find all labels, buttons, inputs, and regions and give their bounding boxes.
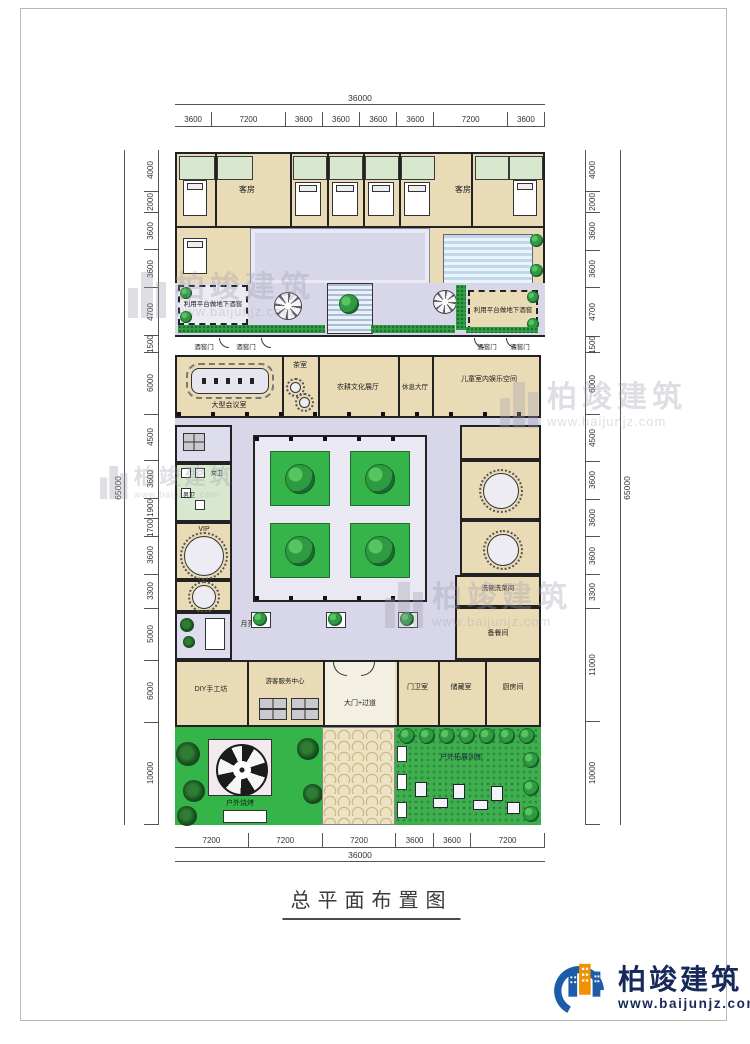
dim-segment: 3600	[397, 112, 434, 126]
drawing-title: 总平面布置图	[282, 884, 460, 920]
room-label-guest-room-right: 客房	[451, 186, 475, 195]
bathroom	[217, 156, 253, 180]
tree	[499, 728, 515, 744]
wall	[175, 335, 545, 337]
bed	[183, 238, 207, 274]
compass-ornament	[433, 290, 457, 314]
column-dots	[255, 596, 425, 600]
wall	[438, 660, 440, 727]
room-label-lounge: 休息大厅	[399, 384, 431, 391]
courtyard-tree	[285, 536, 315, 566]
bbq-pinwheel	[216, 744, 268, 796]
label-training-area: 户外拓展训练	[425, 754, 497, 762]
palm-tree	[303, 784, 323, 804]
tree	[527, 291, 539, 303]
round-table	[483, 473, 519, 509]
planter	[397, 802, 407, 818]
tree	[530, 264, 543, 277]
dim-value: 65000	[113, 473, 123, 503]
tree	[399, 728, 415, 744]
bench	[223, 810, 267, 823]
dim-segment: 3600	[144, 213, 158, 251]
room-label-conference: 大型会议室	[183, 402, 275, 410]
dim-right-segments: 4000200036003600470015006000450036003600…	[585, 150, 600, 825]
room-label-cellar-left: 利用平台做地下酒窖	[180, 301, 246, 308]
room-label-storage: 储藏室	[441, 684, 481, 692]
bathroom	[365, 156, 399, 180]
dim-segment: 4000	[586, 150, 600, 192]
round-table	[192, 585, 216, 609]
dim-segment: 7200	[471, 833, 545, 847]
bed	[183, 180, 207, 216]
tree	[400, 612, 414, 626]
bed	[332, 182, 358, 216]
wall	[397, 660, 399, 727]
dim-segment: 3600	[360, 112, 397, 126]
entry-plaza	[322, 727, 395, 825]
door-label-cellar: 酒窖门	[472, 344, 502, 351]
dim-segment: 3600	[586, 500, 600, 538]
door-label-cellar: 酒窖门	[189, 344, 219, 351]
fitness-equipment	[507, 802, 520, 814]
dim-segment: 3600	[434, 833, 471, 847]
tree	[479, 728, 495, 744]
dim-segment: 7200	[434, 112, 507, 126]
company-logo: 柏竣建筑 www.baijunjz.com	[552, 958, 750, 1018]
dim-segment: 10000	[586, 722, 600, 825]
dim-segment: 3600	[586, 462, 600, 500]
pergola-pool	[443, 234, 533, 287]
dim-segment: 2000	[586, 192, 600, 213]
tea-table	[299, 397, 310, 408]
dim-segment: 5000	[144, 609, 158, 661]
room-label-tea-room: 茶室	[285, 362, 315, 370]
tree	[328, 612, 342, 626]
tree	[439, 728, 455, 744]
dim-segment: 3600	[144, 461, 158, 499]
hedge	[466, 327, 538, 333]
planter	[397, 774, 407, 790]
room-label-prep: 备餐间	[475, 630, 521, 638]
room-label-kitchen: 厨房间	[491, 684, 535, 692]
hedge	[371, 325, 455, 333]
wall	[318, 355, 320, 418]
door-swing	[261, 338, 271, 348]
tree	[419, 728, 435, 744]
dim-segment: 11000	[586, 609, 600, 722]
wall	[432, 355, 434, 418]
wc-fixture	[195, 468, 205, 478]
dim-segment: 1500	[586, 337, 600, 353]
fitness-equipment	[473, 800, 488, 810]
conference-table	[191, 368, 269, 394]
wc-fixture	[181, 468, 191, 478]
room-label-exhibition: 农耕文化展厅	[322, 384, 394, 392]
dim-left-total: 65000	[112, 150, 125, 825]
wall	[290, 152, 292, 228]
furniture	[183, 433, 205, 451]
bathroom	[329, 156, 363, 180]
dim-segment: 3600	[396, 833, 433, 847]
dim-segment: 4500	[586, 415, 600, 462]
room-label-wash-room: 洗碗洗菜间	[465, 585, 531, 592]
dim-segment: 1700	[144, 519, 158, 537]
label-bbq-area: 户外烧烤	[212, 800, 268, 808]
room-label-main-gate: 大门+过道	[333, 700, 387, 708]
planter	[397, 746, 407, 762]
dim-segment: 6000	[586, 353, 600, 415]
bed	[513, 180, 537, 216]
dim-segment: 3600	[144, 250, 158, 288]
dim-segment: 7200	[249, 833, 323, 847]
dim-segment: 3600	[144, 537, 158, 575]
dim-left-segments: 4000200036003600470015006000450036001900…	[144, 150, 159, 825]
courtyard-tree	[285, 464, 315, 494]
dim-segment: 4700	[144, 288, 158, 337]
dim-segment: 10000	[144, 723, 158, 825]
fitness-equipment	[453, 784, 465, 799]
dim-segment: 3300	[586, 575, 600, 610]
dim-bottom-segments: 720072007200360036007200	[175, 833, 545, 848]
tea-table	[290, 382, 301, 393]
dim-value: 36000	[345, 93, 375, 103]
wall	[485, 660, 487, 727]
dim-segment: 6000	[144, 661, 158, 723]
room-label-kids: 儿童室内娱乐空间	[443, 376, 535, 384]
bathroom	[401, 156, 435, 180]
dim-segment: 4000	[144, 150, 158, 192]
tree	[519, 728, 535, 744]
tree	[459, 728, 475, 744]
dim-segment: 3600	[286, 112, 323, 126]
bed	[404, 182, 430, 216]
wall	[282, 355, 284, 418]
dim-segment: 4500	[144, 415, 158, 462]
tree	[180, 311, 192, 323]
bathroom	[509, 156, 543, 180]
bed	[295, 182, 321, 216]
tree	[523, 780, 539, 796]
upper-courtyard	[250, 228, 430, 285]
logo-brand: 柏竣建筑	[618, 965, 750, 996]
dim-segment: 3600	[586, 537, 600, 575]
wall	[247, 660, 249, 727]
dim-segment: 3600	[586, 213, 600, 251]
door-label-cellar: 酒窖门	[505, 344, 535, 351]
dim-top-total: 36000	[175, 92, 545, 105]
bathroom	[179, 156, 215, 180]
courtyard-tree	[365, 536, 395, 566]
dim-segment: 7200	[175, 833, 249, 847]
bathroom	[293, 156, 327, 180]
courtyard-tree	[365, 464, 395, 494]
room-label-womens-wc: 女卫	[205, 471, 229, 478]
palm-tree	[177, 806, 197, 826]
bathroom	[475, 156, 509, 180]
vip-round-table	[184, 536, 224, 576]
tree	[523, 752, 539, 768]
logo-url: www.baijunjz.com	[618, 996, 750, 1011]
tree	[180, 287, 192, 299]
rockery	[180, 618, 194, 632]
room-label-guard: 门卫室	[401, 684, 434, 692]
dim-bottom-total: 36000	[175, 849, 545, 862]
column-dots	[177, 412, 539, 416]
dim-segment: 3600	[175, 112, 212, 126]
rockery	[183, 636, 195, 648]
palm-tree	[183, 780, 205, 802]
column-dots	[255, 437, 425, 441]
dim-value: 36000	[345, 850, 375, 860]
east-rooms	[460, 425, 541, 460]
tree	[253, 612, 267, 626]
room-label-mens-wc: 男卫	[177, 493, 201, 500]
room-label-diy: DIY手工坊	[185, 686, 237, 694]
dim-segment: 6000	[144, 353, 158, 415]
dim-segment: 3600	[586, 251, 600, 289]
fitness-equipment	[433, 798, 448, 808]
dim-segment: 3300	[144, 575, 158, 609]
door-label-cellar: 酒窖门	[231, 344, 261, 351]
service-desks	[259, 698, 287, 720]
display-board	[205, 618, 225, 650]
dim-segment: 1500	[144, 336, 158, 352]
logo-mark-icon	[552, 958, 610, 1018]
dim-segment: 7200	[323, 833, 397, 847]
tree	[530, 234, 543, 247]
dim-segment: 1900	[144, 499, 158, 519]
tree	[523, 806, 539, 822]
palm-tree	[176, 742, 200, 766]
dim-segment: 2000	[144, 192, 158, 213]
dim-segment: 3600	[508, 112, 545, 126]
fitness-equipment	[491, 786, 503, 801]
wc-fixture	[195, 500, 205, 510]
round-table	[487, 534, 519, 566]
site-plan: 客房 客房 利用平台做地下酒窖 利用平台做地下酒窖 酒窖门	[175, 148, 545, 825]
room-label-cellar-right: 利用平台做地下酒窖	[470, 307, 536, 314]
palm-tree	[297, 738, 319, 760]
drawing-sheet: 36000 36007200360036003600360072003600 7…	[0, 0, 750, 1044]
dim-top-segments: 36007200360036003600360072003600	[175, 112, 545, 127]
bed	[368, 182, 394, 216]
dim-right-total: 65000	[620, 150, 633, 825]
dim-segment: 7200	[212, 112, 285, 126]
hedge	[456, 285, 466, 330]
door-swing	[219, 338, 229, 348]
dim-segment: 4700	[586, 288, 600, 337]
dim-value: 65000	[622, 473, 632, 503]
room-label-vip: VIP	[193, 526, 215, 534]
room-label-guest-room-left: 客房	[235, 186, 259, 195]
service-desks	[291, 698, 319, 720]
stair-planter-tree	[339, 294, 359, 314]
room-label-visitor-center: 游客服务中心	[253, 678, 317, 685]
gate-passage	[325, 662, 395, 725]
dim-segment: 3600	[323, 112, 360, 126]
fitness-equipment	[415, 782, 427, 797]
compass-ornament	[274, 292, 302, 320]
hedge	[178, 325, 325, 333]
